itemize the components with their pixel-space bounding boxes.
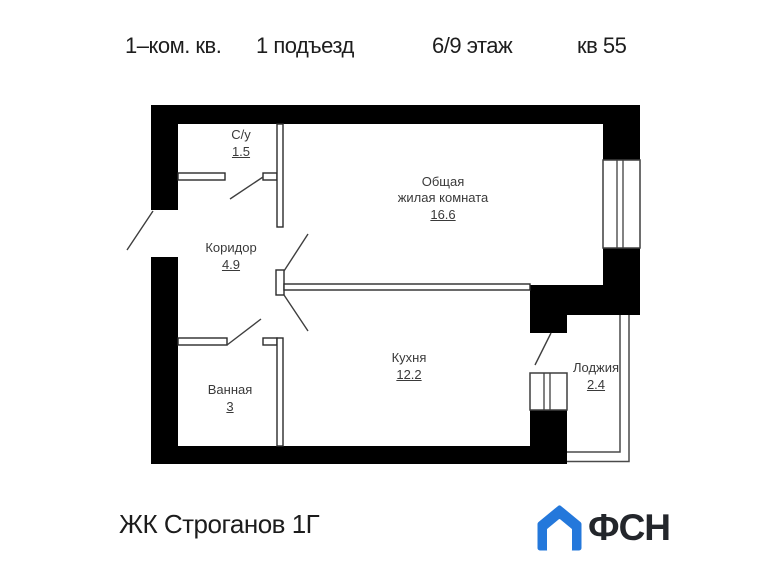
wall-top — [151, 105, 640, 124]
room-label-bathroom: Ванная 3 — [208, 382, 253, 415]
room-name-line2: жилая комната — [398, 190, 489, 206]
wall-loggia-lower — [530, 410, 567, 464]
wall-bottom — [151, 446, 567, 464]
room-name: Ванная — [208, 382, 253, 398]
partition-living-kitchen — [284, 284, 530, 290]
room-name: С/у — [231, 127, 251, 143]
room-area: 1.5 — [232, 144, 250, 160]
room-area: 4.9 — [222, 257, 240, 273]
developer-logo: ФСН — [535, 504, 670, 552]
wall-loggia-upper — [530, 315, 567, 333]
window-kitchen-loggia — [530, 373, 567, 410]
room-label-kitchen: Кухня 12.2 — [392, 350, 427, 383]
door-wc — [230, 177, 263, 199]
wall-left-lower — [151, 257, 178, 464]
partition-bath-kitchen — [277, 338, 283, 446]
partition-wc-right — [263, 173, 277, 180]
room-label-livingroom: Общая жилая комната 16.6 — [398, 174, 489, 223]
floor-plan — [0, 0, 768, 576]
room-label-loggia: Лоджия 2.4 — [573, 360, 619, 393]
room-name: Коридор — [205, 240, 256, 256]
door-loggia — [535, 333, 551, 365]
house-icon — [535, 504, 584, 552]
partition-stub — [276, 270, 284, 295]
wall-right-above-window — [603, 124, 640, 160]
partition-corridor-upper — [277, 124, 283, 227]
wall-livingroom-bottom — [530, 285, 640, 315]
partition-bath-right — [263, 338, 277, 345]
room-name: Кухня — [392, 350, 427, 366]
room-area: 16.6 — [430, 207, 455, 223]
room-area: 2.4 — [587, 377, 605, 393]
complex-name-label: ЖК Строганов 1Г — [119, 509, 319, 540]
room-label-wc: С/у 1.5 — [231, 127, 251, 160]
partition-wc-left — [178, 173, 225, 180]
room-name: Общая — [398, 174, 489, 190]
logo-text: ФСН — [588, 504, 670, 552]
partition-bath-left — [178, 338, 227, 345]
room-name: Лоджия — [573, 360, 619, 376]
door-entrance — [127, 211, 153, 250]
room-label-corridor: Коридор 4.9 — [205, 240, 256, 273]
door-livingroom — [284, 234, 308, 271]
wall-left-upper — [151, 105, 178, 210]
room-area: 3 — [226, 399, 233, 415]
window-livingroom — [603, 160, 640, 248]
door-kitchen — [284, 295, 308, 331]
room-area: 12.2 — [396, 367, 421, 383]
door-bathroom — [227, 319, 261, 345]
